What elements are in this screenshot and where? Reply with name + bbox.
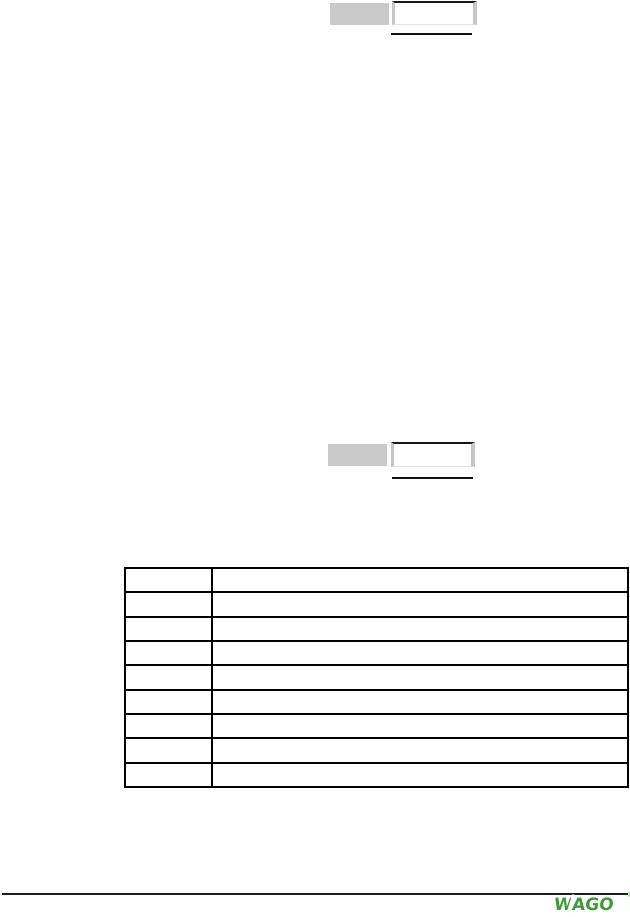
table-cell-right — [212, 690, 628, 714]
footer-rule — [2, 893, 628, 895]
table-cell-right — [212, 641, 628, 665]
table-row — [125, 592, 628, 616]
mid-field-entry-box — [391, 442, 475, 467]
table-cell-left — [125, 738, 212, 762]
table-row — [125, 690, 628, 714]
table-cell-right — [212, 665, 628, 689]
mid-field-label-box — [328, 444, 387, 466]
table-row — [125, 641, 628, 665]
table-cell-left — [125, 690, 212, 714]
mid-field-underline — [392, 477, 473, 479]
top-field-underline — [391, 33, 472, 35]
table-cell-right — [212, 763, 628, 787]
table-cell-right — [212, 568, 628, 592]
top-field-label-box — [330, 3, 389, 25]
table-cell-right — [212, 714, 628, 738]
table-cell-left — [125, 665, 212, 689]
table-row — [125, 665, 628, 689]
table-cell-left — [125, 714, 212, 738]
table-cell-left — [125, 592, 212, 616]
document-page: WAGO ® — [0, 0, 630, 917]
table-cell-right — [212, 617, 628, 641]
table-cell-left — [125, 568, 212, 592]
table-row — [125, 568, 628, 592]
table-row — [125, 714, 628, 738]
wago-logo: WAGO ® — [554, 896, 630, 916]
table-cell-left — [125, 617, 212, 641]
wago-logo-text: WAGO — [553, 896, 615, 915]
table-cell-left — [125, 763, 212, 787]
table-row — [125, 738, 628, 762]
top-field-entry-box — [392, 1, 477, 25]
table-cell-left — [125, 641, 212, 665]
table-cell-right — [212, 738, 628, 762]
table-row — [125, 763, 628, 787]
table-row — [125, 617, 628, 641]
empty-table — [124, 567, 629, 788]
table-cell-right — [212, 592, 628, 616]
empty-table-body — [125, 568, 628, 787]
